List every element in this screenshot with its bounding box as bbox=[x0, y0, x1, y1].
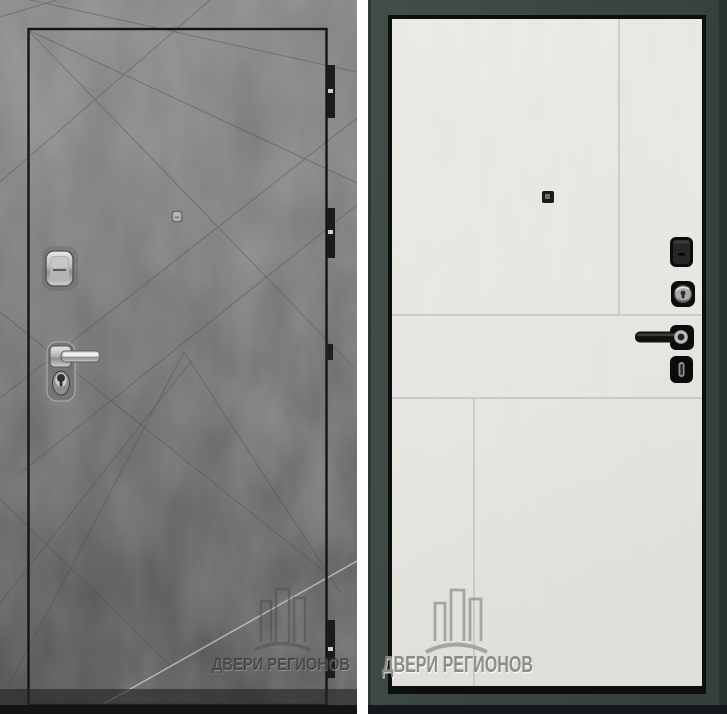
svg-text:ДВЕРИ РЕГИОНОВ: ДВЕРИ РЕГИОНОВ bbox=[212, 654, 350, 674]
svg-text:ДВЕРИ РЕГИОНОВ: ДВЕРИ РЕГИОНОВ bbox=[382, 651, 533, 677]
